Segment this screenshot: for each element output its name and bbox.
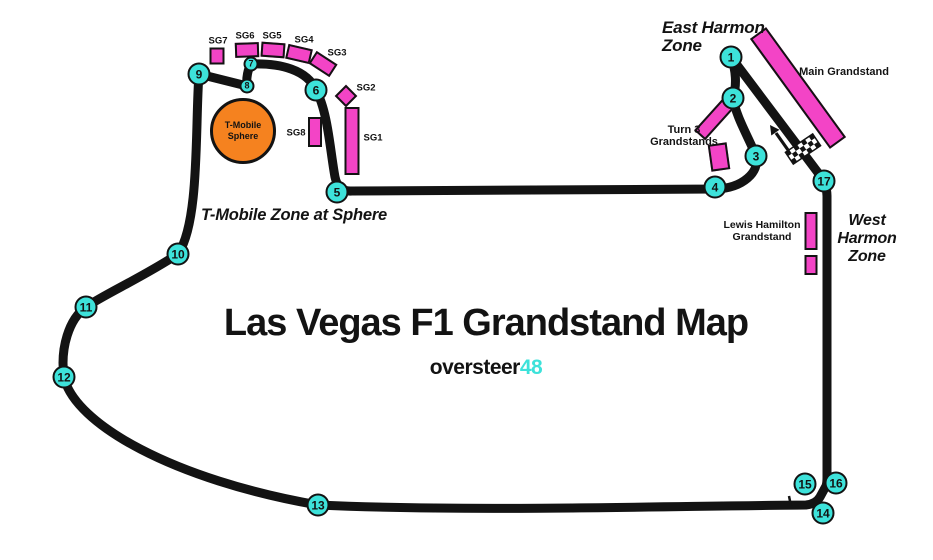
page-title: Las Vegas F1 Grandstand Map xyxy=(224,303,748,343)
turn3-label-text: Turn 3Grandstands xyxy=(650,124,718,148)
turn-marker-15: 15 xyxy=(794,473,817,496)
turn-marker-6: 6 xyxy=(305,79,328,102)
turn-marker-4: 4 xyxy=(704,176,727,199)
east-harmon-text: East HarmonZone xyxy=(662,19,765,55)
grandstand-sg7 xyxy=(210,48,225,65)
grandstand-sg6 xyxy=(235,42,260,58)
west-harmon-text: WestHarmonZone xyxy=(837,212,896,266)
turn-marker-8: 8 xyxy=(240,79,255,94)
turn-marker-5: 5 xyxy=(326,181,349,204)
sphere-label-line1: T-Mobile xyxy=(225,120,262,131)
turn-marker-11: 11 xyxy=(75,296,98,319)
grandstand-map: T-Mobile Sphere Las Vegas F1 Grandstand … xyxy=(0,0,933,560)
grandstand-label-sg8: SG8 xyxy=(286,128,305,139)
turn-marker-14: 14 xyxy=(812,502,835,525)
grandstand-lewis-tall xyxy=(805,212,818,250)
main-label-text: Main Grandstand xyxy=(799,66,889,78)
grandstand-label-sg5: SG5 xyxy=(262,31,281,42)
turn-marker-9: 9 xyxy=(188,63,211,86)
grandstand-label-sg4: SG4 xyxy=(294,35,313,46)
turn-marker-12: 12 xyxy=(53,366,76,389)
grandstand-label-sg3: SG3 xyxy=(327,48,346,59)
t-mobile-sphere: T-Mobile Sphere xyxy=(210,98,276,164)
grandstand-label-sg6: SG6 xyxy=(235,31,254,42)
brand-number: 48 xyxy=(520,356,542,379)
title-block: Las Vegas F1 Grandstand Map oversteer48 xyxy=(224,303,748,380)
grandstand-sg8 xyxy=(308,117,322,147)
turn-marker-7: 7 xyxy=(244,57,259,72)
grandstand-label-sg2: SG2 xyxy=(356,83,375,94)
sphere-zone-text: T-Mobile Zone at Sphere xyxy=(201,206,387,224)
turn-marker-2: 2 xyxy=(722,87,745,110)
grandstand-label-sg1: SG1 xyxy=(363,133,382,144)
grandstand-sg5 xyxy=(261,42,286,59)
lewis-label-text: Lewis HamiltonGrandstand xyxy=(723,220,800,243)
brand-name: oversteer xyxy=(430,356,520,379)
sphere-label-line2: Sphere xyxy=(228,131,259,142)
grandstand-sg1 xyxy=(345,107,360,175)
turn-marker-13: 13 xyxy=(307,494,330,517)
grandstand-label-sg7: SG7 xyxy=(208,36,227,47)
turn-marker-17: 17 xyxy=(813,170,836,193)
turn-marker-10: 10 xyxy=(167,243,190,266)
turn-marker-3: 3 xyxy=(745,145,768,168)
grandstand-lewis-small xyxy=(805,255,818,275)
turn-marker-16: 16 xyxy=(825,472,848,495)
turn-marker-1: 1 xyxy=(720,46,743,69)
brand-logo: oversteer48 xyxy=(224,356,748,380)
